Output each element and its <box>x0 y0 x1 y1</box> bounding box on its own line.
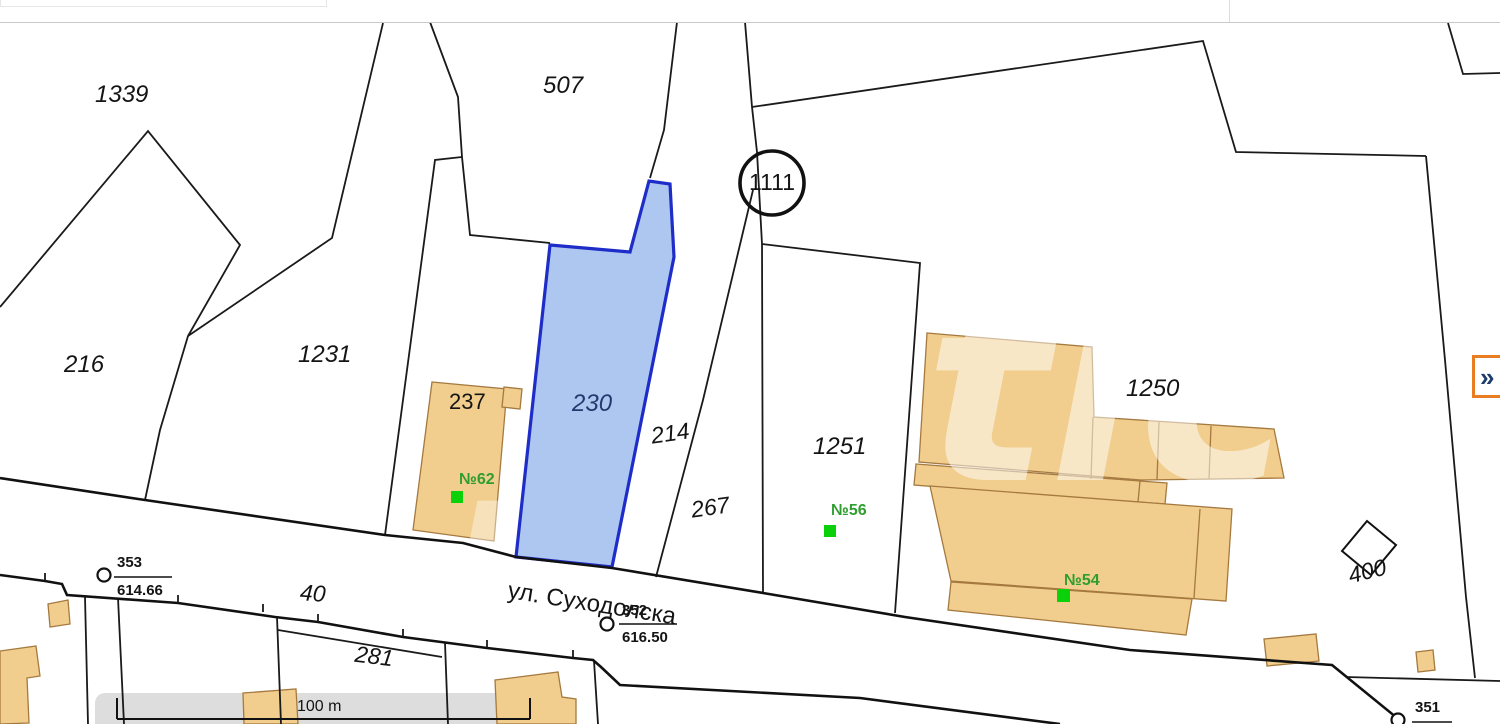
header-divider <box>1229 0 1230 22</box>
cadastral-map-view: g rc tic <box>0 0 1500 724</box>
scale-bar-label: 100 m <box>297 699 341 716</box>
chevron-right-icon: » <box>1480 362 1494 392</box>
parcel-label-1231: 1231 <box>298 342 351 367</box>
survey-point-353-elevation: 614.66 <box>117 583 163 599</box>
survey-point-353-id: 353 <box>117 555 142 571</box>
parcel-label-281: 281 <box>354 642 395 671</box>
map-canvas: g rc tic <box>0 0 1500 724</box>
parcel-label-1250: 1250 <box>1126 376 1179 401</box>
survey-point-351-id: 351 <box>1415 700 1440 716</box>
parcel-label-230: 230 <box>572 391 612 416</box>
parcel-label-1339: 1339 <box>95 82 148 107</box>
expand-panel-button[interactable]: » <box>1472 355 1500 398</box>
watermark-fragment: tic <box>925 240 1293 542</box>
header-bar <box>0 0 1500 23</box>
building-label-237: 237 <box>449 390 486 413</box>
small-building <box>1416 650 1435 672</box>
small-building <box>48 600 70 627</box>
building-number-54: №54 <box>1064 573 1100 590</box>
parcel-label-507: 507 <box>543 73 583 98</box>
building-number-56: №56 <box>831 503 867 520</box>
header-left-box <box>0 0 327 7</box>
block-number-label: 1111 <box>746 170 798 194</box>
parcel-label-216: 216 <box>64 352 104 377</box>
building-62-marker <box>451 491 463 503</box>
survey-point-351-marker <box>1392 714 1405 724</box>
building-number-62: №62 <box>459 472 495 489</box>
small-building <box>495 672 576 724</box>
building-54-marker <box>1057 589 1070 602</box>
survey-point-353-marker <box>98 569 111 582</box>
parcel-label-214: 214 <box>650 418 691 447</box>
parcel-label-1251: 1251 <box>813 434 866 459</box>
parcel-label-267: 267 <box>690 492 731 521</box>
small-building <box>0 646 40 724</box>
building-56-marker <box>824 525 836 537</box>
parcel-label-40: 40 <box>299 580 326 606</box>
survey-point-352-elevation: 616.50 <box>622 630 668 646</box>
